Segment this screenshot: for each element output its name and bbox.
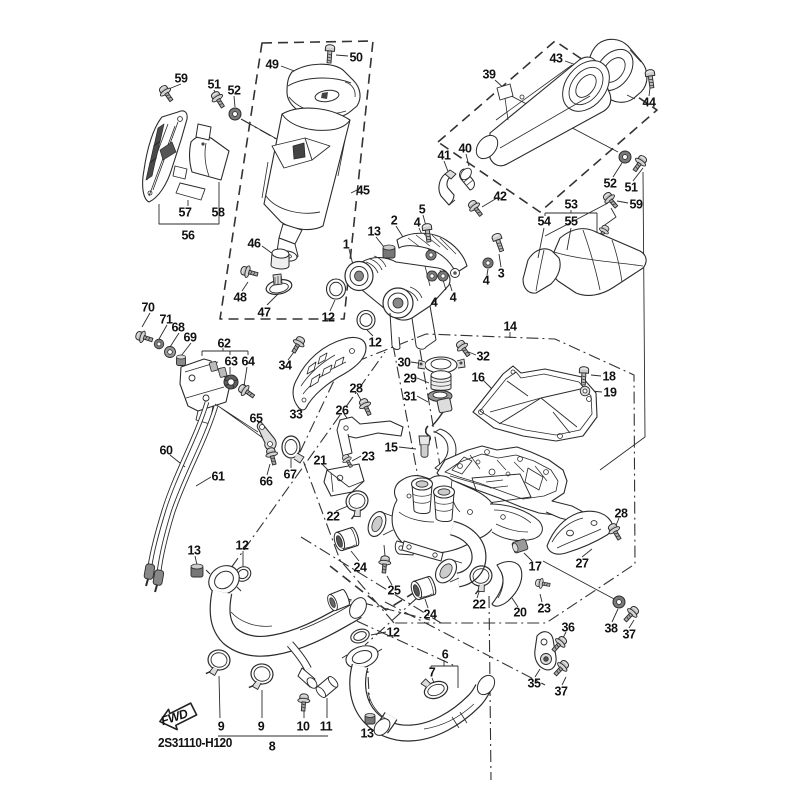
svg-text:13: 13 [360, 727, 374, 741]
svg-text:62: 62 [217, 337, 231, 351]
svg-text:18: 18 [602, 370, 616, 384]
svg-text:25: 25 [387, 584, 401, 598]
svg-text:50: 50 [349, 51, 363, 65]
svg-text:21: 21 [313, 454, 327, 468]
svg-text:17: 17 [528, 560, 542, 574]
svg-text:28: 28 [349, 382, 363, 396]
svg-text:26: 26 [335, 404, 349, 418]
svg-text:12: 12 [321, 311, 335, 325]
svg-text:65: 65 [249, 412, 263, 426]
svg-text:24: 24 [423, 608, 437, 622]
svg-text:14: 14 [503, 320, 517, 334]
svg-text:57: 57 [178, 206, 192, 220]
svg-text:67: 67 [283, 468, 297, 482]
svg-text:58: 58 [211, 206, 225, 220]
svg-text:4: 4 [414, 216, 421, 230]
svg-text:37: 37 [554, 685, 568, 699]
svg-text:16: 16 [471, 371, 485, 385]
svg-text:12: 12 [386, 626, 400, 640]
svg-text:28: 28 [614, 507, 628, 521]
svg-text:56: 56 [181, 229, 195, 243]
svg-text:8: 8 [269, 740, 276, 754]
svg-text:47: 47 [257, 306, 271, 320]
svg-text:35: 35 [527, 677, 541, 691]
svg-text:54: 54 [537, 215, 551, 229]
svg-text:41: 41 [437, 149, 451, 163]
svg-text:11: 11 [320, 720, 333, 734]
svg-text:42: 42 [493, 190, 507, 204]
svg-text:9: 9 [258, 720, 265, 734]
svg-text:32: 32 [476, 350, 490, 364]
svg-text:66: 66 [259, 475, 273, 489]
svg-text:53: 53 [564, 198, 578, 212]
svg-text:55: 55 [564, 215, 578, 229]
svg-text:33: 33 [289, 408, 303, 422]
svg-text:20: 20 [513, 606, 527, 620]
svg-text:64: 64 [241, 355, 255, 369]
svg-text:44: 44 [642, 96, 656, 110]
svg-text:13: 13 [367, 225, 381, 239]
svg-text:12: 12 [235, 539, 249, 553]
svg-text:40: 40 [458, 142, 472, 156]
svg-text:22: 22 [326, 510, 340, 524]
svg-text:27: 27 [575, 557, 589, 571]
svg-text:3: 3 [498, 267, 505, 281]
svg-text:46: 46 [247, 237, 261, 251]
svg-text:51: 51 [624, 181, 638, 195]
svg-text:43: 43 [549, 52, 563, 66]
svg-text:12: 12 [368, 336, 382, 350]
svg-text:7: 7 [429, 666, 436, 680]
svg-text:31: 31 [403, 390, 417, 404]
svg-text:5: 5 [419, 203, 426, 217]
svg-text:29: 29 [403, 372, 417, 386]
svg-text:4: 4 [483, 274, 490, 288]
svg-text:49: 49 [265, 58, 279, 72]
svg-text:4: 4 [450, 291, 457, 305]
svg-text:1: 1 [343, 238, 350, 252]
svg-text:59: 59 [629, 198, 643, 212]
svg-text:22: 22 [472, 598, 486, 612]
svg-text:23: 23 [537, 602, 551, 616]
svg-text:30: 30 [397, 356, 411, 370]
svg-text:52: 52 [603, 177, 617, 191]
svg-text:60: 60 [159, 444, 173, 458]
svg-text:2S31110-H120: 2S31110-H120 [158, 736, 232, 750]
svg-text:34: 34 [278, 359, 292, 373]
svg-text:52: 52 [227, 84, 241, 98]
svg-text:4: 4 [431, 296, 438, 310]
svg-text:13: 13 [187, 544, 201, 558]
svg-text:45: 45 [356, 184, 370, 198]
svg-text:48: 48 [233, 291, 247, 305]
svg-text:63: 63 [224, 355, 238, 369]
svg-text:61: 61 [211, 470, 225, 484]
svg-text:2: 2 [391, 214, 398, 228]
svg-text:23: 23 [361, 450, 375, 464]
svg-text:59: 59 [174, 72, 188, 86]
svg-text:15: 15 [384, 441, 398, 455]
svg-text:38: 38 [604, 622, 618, 636]
svg-text:37: 37 [622, 628, 636, 642]
svg-text:36: 36 [561, 621, 575, 635]
svg-text:9: 9 [218, 720, 225, 734]
svg-text:6: 6 [442, 648, 449, 662]
svg-text:10: 10 [296, 720, 310, 734]
svg-text:51: 51 [207, 78, 221, 92]
svg-text:70: 70 [141, 301, 155, 315]
svg-text:24: 24 [353, 561, 367, 575]
svg-text:39: 39 [482, 68, 496, 82]
svg-text:69: 69 [183, 331, 197, 345]
svg-text:19: 19 [603, 386, 617, 400]
